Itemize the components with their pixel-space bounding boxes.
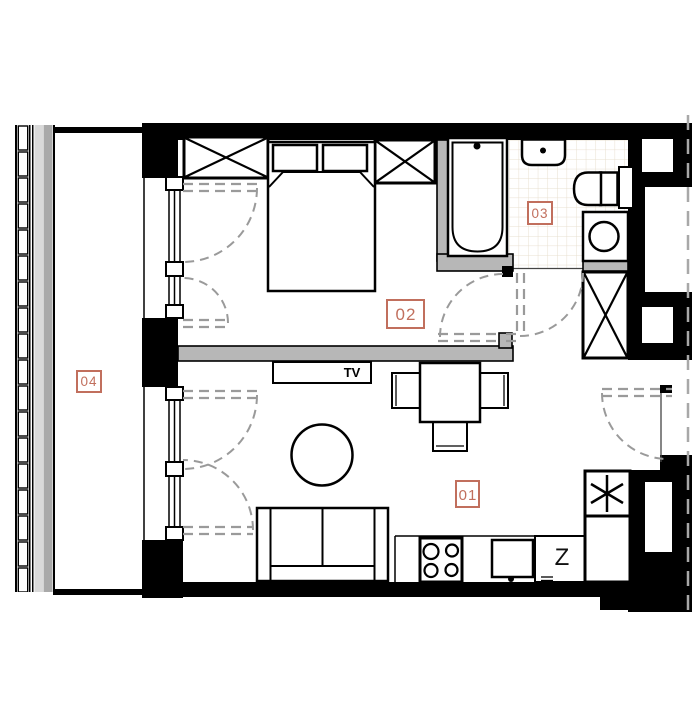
sink-faucet-icon xyxy=(540,148,546,154)
railing-gray-band-light xyxy=(35,125,44,592)
pillow xyxy=(323,145,367,171)
dining-table xyxy=(420,363,480,422)
tv-cabinet: TV xyxy=(273,362,371,383)
wall-bottom xyxy=(142,582,648,597)
wardrobe-bedroom-left xyxy=(184,137,268,178)
toilet-tank xyxy=(600,173,618,206)
svg-text:03: 03 xyxy=(531,206,548,221)
railing-outer-line xyxy=(15,125,17,592)
bathroom-sink xyxy=(522,140,565,166)
wall-niche xyxy=(645,482,672,552)
toilet-bowl xyxy=(574,173,601,206)
railing-inner-line xyxy=(53,125,55,592)
bathtub-outline xyxy=(448,138,507,256)
bathroom-door-hinge-tab xyxy=(502,266,513,277)
balcony-bottom-edge xyxy=(53,589,142,595)
room-label-02: 02 xyxy=(387,300,424,328)
partition-bathroom-bottom-right xyxy=(583,261,628,271)
wall-niche xyxy=(645,187,692,292)
partition-bedroom-living xyxy=(178,346,513,361)
window-frame-block xyxy=(166,462,183,476)
balcony-top-edge xyxy=(53,127,142,133)
railing-line xyxy=(32,125,34,592)
sink-faucet-icon xyxy=(508,576,514,582)
dishwasher: Z xyxy=(535,536,585,582)
wall-niche xyxy=(642,139,673,172)
pillow xyxy=(273,145,317,171)
railing-line xyxy=(29,125,31,592)
svg-text:01: 01 xyxy=(459,487,478,504)
bed xyxy=(268,142,375,291)
toilet xyxy=(574,167,633,208)
dining-set xyxy=(392,363,508,451)
window-frame-block xyxy=(166,527,183,540)
door-swing-bedroom xyxy=(438,274,503,341)
wardrobe-hall-closet xyxy=(583,272,628,358)
fridge xyxy=(585,471,630,582)
toilet-shelf xyxy=(619,167,633,208)
dishwasher-label: Z xyxy=(555,544,570,571)
wall-niche xyxy=(642,307,673,343)
door-swing-entry xyxy=(602,389,672,462)
railing-baluster-pattern xyxy=(18,125,29,592)
kitchen-tall-cabinet xyxy=(585,516,630,582)
washing-machine xyxy=(583,212,628,261)
bathtub-faucet-icon xyxy=(474,143,481,150)
sink-bowl xyxy=(492,540,533,577)
coffee-table xyxy=(292,425,353,486)
wall-pier-left-middle xyxy=(142,318,178,387)
railing-gray-band-dark xyxy=(44,125,53,592)
kitchen: Z xyxy=(395,471,630,582)
stove xyxy=(420,538,462,582)
window-frame-block xyxy=(166,177,183,190)
wall-pier-left-top xyxy=(142,123,178,178)
window-swing-living xyxy=(183,391,257,534)
door-swing-bathroom xyxy=(506,273,583,341)
tv-label: TV xyxy=(344,365,361,380)
svg-text:04: 04 xyxy=(80,374,97,389)
window-frame-block xyxy=(166,305,183,318)
balcony-railing xyxy=(15,125,142,595)
window-swing-bedroom xyxy=(183,184,257,327)
window-frame-block xyxy=(166,262,183,276)
room-label-04: 04 xyxy=(77,371,101,392)
window-frame-block xyxy=(166,387,183,400)
room-label-01: 01 xyxy=(456,481,479,507)
kitchen-sink xyxy=(492,540,533,582)
wardrobe-bedroom-right xyxy=(375,140,435,183)
floor-plan: TV Z xyxy=(0,0,700,721)
room-label-03: 03 xyxy=(528,202,552,224)
sofa xyxy=(257,508,388,581)
svg-text:02: 02 xyxy=(396,305,417,324)
wall-bottom-right-extension xyxy=(600,582,692,610)
bathtub xyxy=(448,138,507,256)
